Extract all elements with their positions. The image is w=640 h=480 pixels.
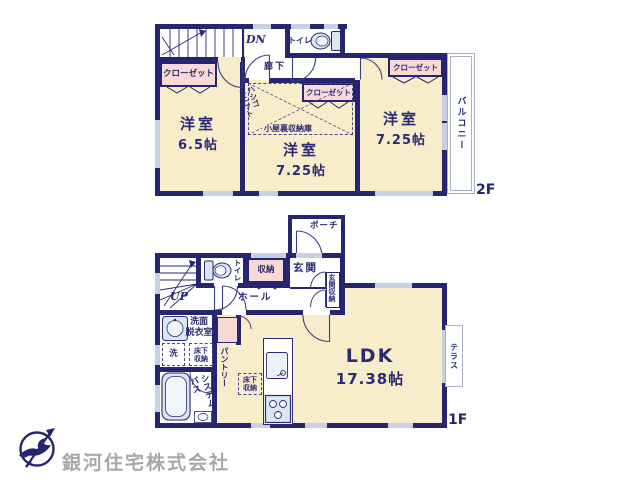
stove-icon bbox=[265, 395, 292, 424]
washroom-label: 洗面 脱衣室 bbox=[184, 317, 214, 339]
door-arc bbox=[310, 290, 326, 308]
wall-segment bbox=[246, 310, 303, 315]
door-arc bbox=[190, 372, 212, 394]
washer-space: 洗 bbox=[162, 343, 185, 366]
toilet-1f-icon bbox=[204, 260, 232, 281]
company-name: 銀河住宅株式会社 bbox=[62, 448, 230, 475]
toilet-1f-label: トイレ bbox=[233, 259, 242, 283]
pantry-label: パントリー bbox=[219, 347, 229, 397]
bath-sink-icon bbox=[194, 411, 212, 423]
pantry-box bbox=[217, 317, 238, 343]
window-marker bbox=[305, 423, 327, 428]
storage-1f: 収納 bbox=[247, 258, 285, 283]
entrance-storage-label: 玄関収納 bbox=[328, 274, 336, 307]
porch-label: ポーチ bbox=[310, 221, 339, 231]
door-arc bbox=[238, 316, 251, 329]
terrace: テラス bbox=[445, 325, 463, 387]
floorplan-canvas: バルコニー DN トイレ 廊下 クローゼット クローゼット bbox=[0, 0, 640, 480]
kitchen-sink-icon bbox=[266, 352, 290, 380]
ldk-size: 17.38帖 bbox=[320, 370, 420, 388]
door-arc bbox=[303, 315, 330, 342]
window-marker bbox=[388, 423, 413, 428]
wall-segment bbox=[288, 215, 345, 219]
stairs-up-label: UP bbox=[170, 290, 188, 303]
ldk-name: LDK bbox=[320, 345, 420, 368]
door-arc bbox=[222, 286, 246, 310]
window-marker bbox=[155, 345, 160, 365]
floor-1-plan: ポーチ bbox=[0, 0, 640, 480]
floor-1-label: 1F bbox=[448, 412, 467, 428]
wall-segment bbox=[341, 215, 345, 257]
wall-segment bbox=[330, 310, 345, 315]
window-marker bbox=[375, 283, 412, 288]
folding-door-icon bbox=[251, 282, 282, 290]
washer-label: 洗 bbox=[169, 349, 178, 359]
wall-segment bbox=[340, 253, 345, 315]
wall-segment bbox=[196, 283, 214, 288]
underfloor-storage-ldk: 床下収納 bbox=[238, 373, 262, 395]
door-arc bbox=[310, 272, 326, 290]
entrance-door-marker bbox=[296, 253, 322, 258]
terrace-label: テラス bbox=[449, 343, 460, 370]
company-logo-icon bbox=[14, 424, 60, 470]
underfloor-storage-washroom: 床下収納 bbox=[189, 343, 213, 366]
storage-label: 収納 bbox=[257, 265, 274, 275]
window-marker bbox=[155, 385, 160, 412]
wall-segment bbox=[288, 215, 292, 257]
